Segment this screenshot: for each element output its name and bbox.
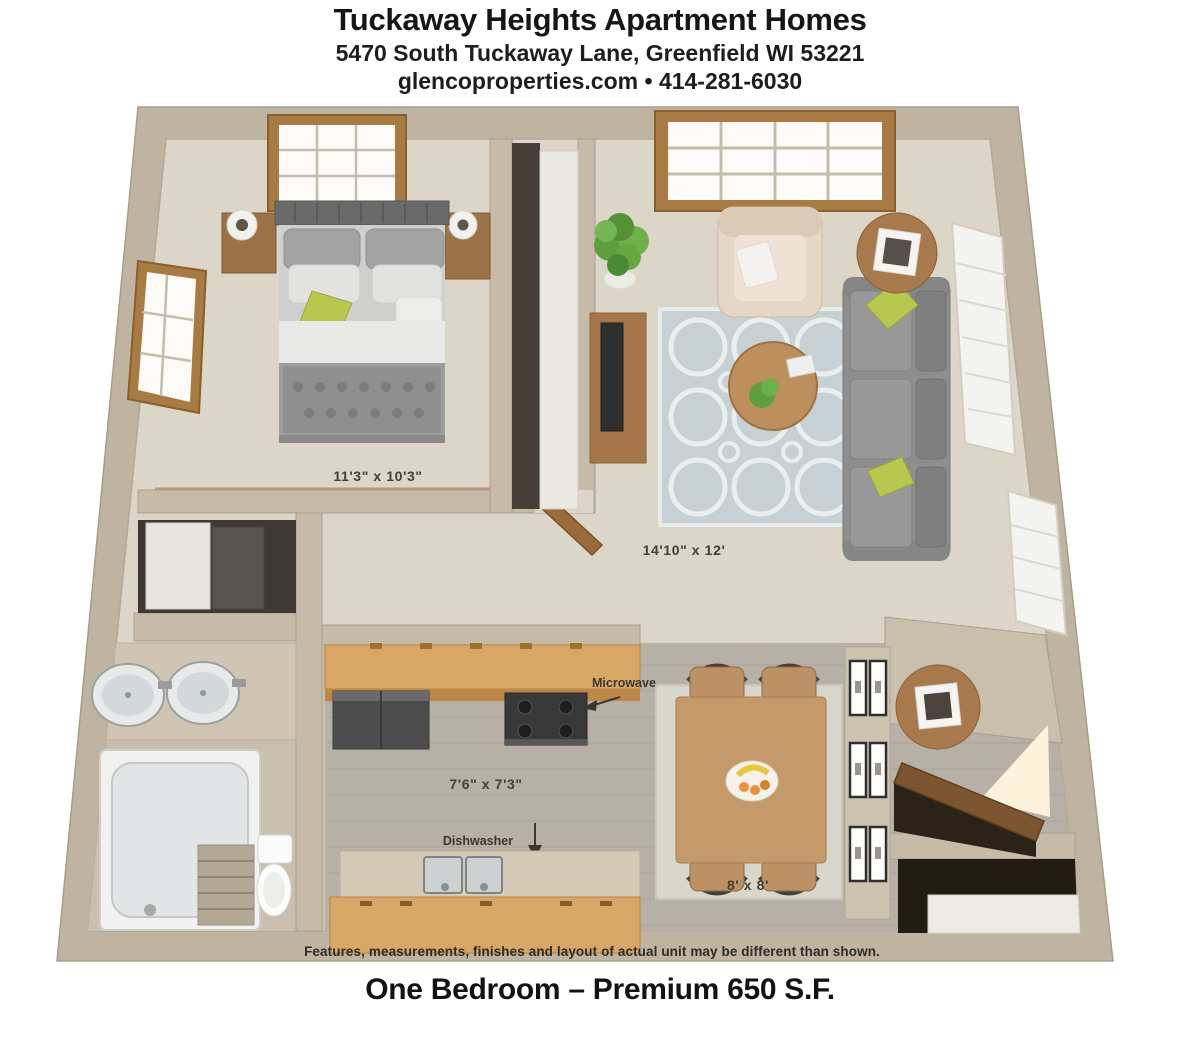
bathroom-east-wall <box>296 513 322 931</box>
refrigerator <box>333 691 429 749</box>
closet-sliding-door <box>540 151 578 509</box>
floor-plan-svg: 11'3" x 10'3" <box>0 95 1200 969</box>
bedroom-window-top <box>268 115 406 211</box>
kitchen-sink <box>424 857 502 893</box>
faucet <box>158 681 172 689</box>
laundry-south-wall <box>134 613 296 641</box>
armchair <box>718 207 822 317</box>
microwave-label: Microwave <box>592 676 656 690</box>
property-name: Tuckaway Heights Apartment Homes <box>0 2 1200 38</box>
floor-plan-flyer: Tuckaway Heights Apartment Homes 5470 So… <box>0 0 1200 1007</box>
pillow <box>366 229 444 269</box>
kitchen-dimensions: 7'6" x 7'3" <box>449 776 522 792</box>
dining-area: 8' x 8' <box>676 666 826 893</box>
vanity-sink <box>167 662 239 724</box>
towels <box>198 845 254 925</box>
faucet <box>232 679 246 687</box>
photo <box>882 237 911 266</box>
pillow <box>284 229 360 269</box>
kitchen-north-wall <box>322 625 640 645</box>
property-contact: glencoproperties.com • 414-281-6030 <box>0 68 1200 95</box>
side-table-top <box>857 213 937 293</box>
dining-dimensions: 8' x 8' <box>727 877 769 893</box>
tv-console <box>590 313 646 463</box>
laundry-closet <box>138 520 296 613</box>
fruit-bowl <box>726 761 778 801</box>
entry-alcove <box>898 859 1080 933</box>
tub-faucet <box>144 904 156 916</box>
coffee-table <box>729 342 817 430</box>
foot-fold <box>279 435 445 443</box>
bedroom-window-left <box>128 261 206 413</box>
flyer-footer: One Bedroom – Premium 650 S.F. <box>0 973 1200 1007</box>
back-cushion <box>916 467 946 547</box>
disclaimer-text: Features, measurements, finishes and lay… <box>304 944 880 959</box>
window-right-lower <box>1008 491 1066 635</box>
floor-plan-rendering: 11'3" x 10'3" <box>0 95 1200 969</box>
contact-separator: • <box>644 68 652 94</box>
sofa <box>843 277 950 561</box>
tv <box>601 323 623 431</box>
bed <box>275 201 449 443</box>
living-room-window-top <box>655 111 895 211</box>
photo <box>924 692 953 721</box>
duvet-pattern-band <box>283 367 441 433</box>
lamp-shade-center <box>236 219 248 231</box>
alcove-shelf <box>928 895 1080 933</box>
plan-title: One Bedroom – Premium 650 S.F. <box>365 973 835 1006</box>
seat-cushion <box>850 379 912 459</box>
property-address: 5470 South Tuckaway Lane, Greenfield WI … <box>0 40 1200 67</box>
washer <box>146 523 210 609</box>
stove <box>505 693 587 745</box>
living-room-dimensions: 14'10" x 12' <box>643 542 726 558</box>
table-plant-leaf <box>761 378 779 396</box>
closet-interior <box>512 143 540 509</box>
flyer-header: Tuckaway Heights Apartment Homes 5470 So… <box>0 0 1200 95</box>
dishwasher-label: Dishwasher <box>443 834 513 848</box>
bedroom-dimensions: 11'3" x 10'3" <box>333 468 422 484</box>
back-cushion <box>916 291 946 371</box>
vanity-sink <box>92 664 164 726</box>
sheet-fold <box>279 321 445 363</box>
lamp-shade-center <box>458 220 469 231</box>
dryer <box>212 527 264 609</box>
closet-wall-left <box>490 139 512 513</box>
property-website: glencoproperties.com <box>398 68 638 94</box>
toilet <box>257 835 292 916</box>
back-cushion <box>916 379 946 459</box>
property-phone: 414-281-6030 <box>659 68 802 94</box>
side-table-bottom <box>896 665 980 749</box>
hall-closet <box>512 143 578 509</box>
